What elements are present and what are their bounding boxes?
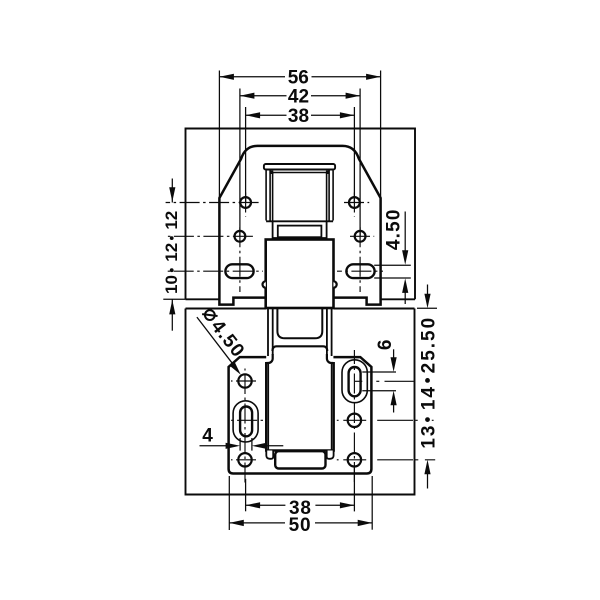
- svg-text:13: 13: [418, 424, 439, 449]
- svg-text:50: 50: [289, 515, 312, 536]
- svg-text:25.50: 25.50: [418, 316, 439, 374]
- svg-text:12: 12: [162, 211, 181, 230]
- svg-text:56: 56: [288, 68, 309, 89]
- svg-text:12: 12: [162, 243, 181, 262]
- svg-text:42: 42: [288, 87, 309, 108]
- svg-text:4.50: 4.50: [384, 208, 405, 250]
- svg-text:4: 4: [202, 425, 213, 446]
- svg-text:14: 14: [418, 385, 439, 410]
- svg-text:38: 38: [288, 106, 309, 127]
- svg-text:6: 6: [375, 340, 396, 351]
- svg-text:10: 10: [162, 275, 181, 294]
